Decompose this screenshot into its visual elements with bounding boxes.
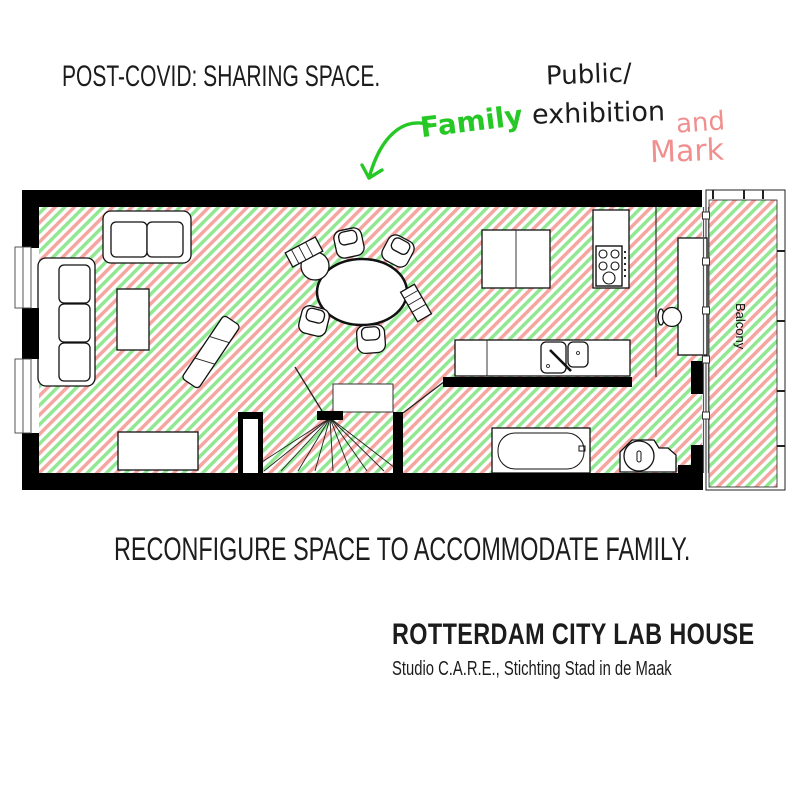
stove (593, 210, 629, 288)
bed (118, 432, 198, 470)
dining-chair (356, 324, 386, 354)
annotation-mark: Mark (649, 133, 724, 171)
dining-table (317, 259, 407, 325)
bathtub (492, 428, 590, 473)
annotation-family: Family (418, 99, 524, 144)
dining-chair (332, 226, 365, 259)
balcony-label: Balcony (733, 303, 748, 350)
family-arrow-icon (352, 112, 432, 190)
project-title: ROTTERDAM CITY LAB HOUSE (392, 618, 755, 652)
credits-block: ROTTERDAM CITY LAB HOUSE Studio C.A.R.E.… (392, 618, 800, 681)
kitchen-island (482, 230, 550, 288)
annotation-exhibition: exhibition (532, 96, 666, 130)
annotation-public: Public/ (546, 59, 633, 92)
stair-doorframe (238, 412, 263, 473)
sofa-three-seat (38, 258, 95, 386)
desk (678, 238, 707, 355)
caption: RECONFIGURE SPACE TO ACCOMMODATE FAMILY. (114, 531, 690, 568)
stair-landing (333, 384, 393, 412)
coffee-table (117, 289, 149, 350)
poster: POST-COVID: SHARING SPACE. Public/ exhib… (0, 0, 800, 800)
stool (658, 308, 682, 327)
kitchen-counter (455, 340, 630, 376)
project-credits: Studio C.A.R.E., Stichting Stad in de Ma… (392, 658, 736, 681)
page-title: POST-COVID: SHARING SPACE. (62, 60, 380, 94)
floor-plan: Balcony (14, 183, 792, 495)
balcony: Balcony (706, 190, 785, 490)
sofa-two-seat (103, 211, 191, 263)
